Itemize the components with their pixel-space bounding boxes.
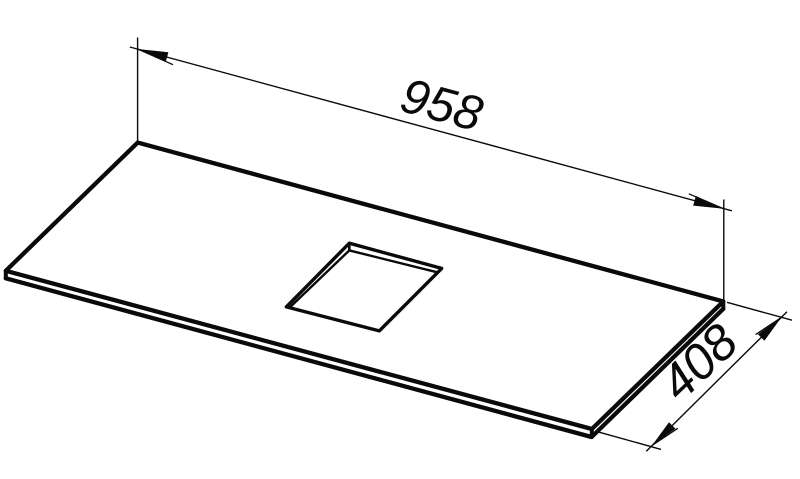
svg-text:958: 958 (395, 69, 488, 143)
